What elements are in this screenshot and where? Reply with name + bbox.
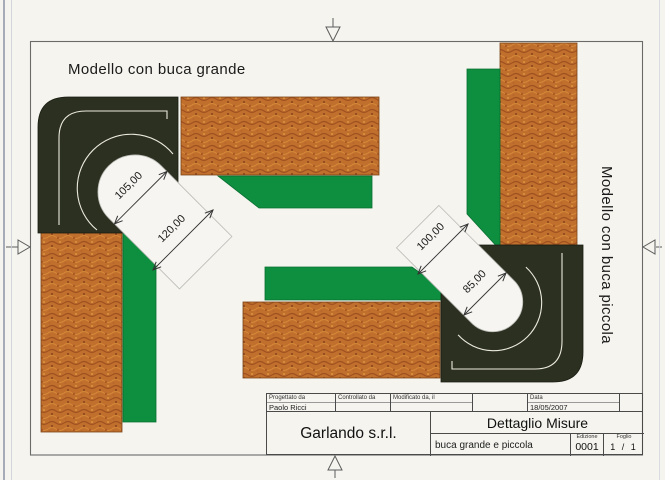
empty-label bbox=[473, 394, 527, 402]
scan-edge-line-left bbox=[3, 0, 5, 480]
empty-label bbox=[620, 394, 642, 402]
cell-sheet: Foglio 1 / 1 bbox=[604, 434, 644, 456]
center-mark-bottom bbox=[328, 456, 342, 478]
modified-by-label: Modificato da, il bbox=[391, 394, 472, 403]
scan-edge-line-left-2 bbox=[11, 0, 12, 480]
sheet-value: 1 / 1 bbox=[604, 441, 644, 454]
sheet-label: Foglio bbox=[604, 434, 644, 441]
cell-date: Data 18/05/2007 bbox=[528, 394, 620, 411]
model-large-assembly bbox=[38, 97, 379, 432]
company-name: Garlando s.r.l. bbox=[267, 412, 431, 456]
cell-empty-2 bbox=[620, 394, 642, 411]
wood-panel-right bbox=[500, 43, 577, 245]
checked-by-label: Controllato da bbox=[336, 394, 390, 403]
cell-designed-by: Progettato da Paolo Ricci bbox=[267, 394, 336, 411]
cell-empty-1 bbox=[473, 394, 528, 411]
cloth-strip-top bbox=[218, 176, 372, 208]
wood-panel-top bbox=[181, 97, 379, 175]
scan-edge-line-right bbox=[659, 0, 660, 480]
cell-modified-by: Modificato da, il bbox=[391, 394, 473, 411]
date-label: Data bbox=[528, 394, 619, 403]
edition-label: Edizione bbox=[571, 434, 603, 441]
scanned-technical-drawing: 105,00 120,00 100,00 85,00 Modello con b… bbox=[0, 0, 665, 480]
wood-panel-left bbox=[41, 233, 122, 432]
center-mark-left bbox=[6, 240, 30, 254]
cell-checked-by: Controllato da bbox=[336, 394, 391, 411]
designed-by-value: Paolo Ricci bbox=[267, 403, 335, 411]
cell-edition: Edizione 0001 bbox=[571, 434, 604, 456]
model-large-caption: Modello con buca grande bbox=[68, 61, 246, 78]
cloth-strip-right bbox=[467, 69, 500, 250]
document-title: Dettaglio Misure bbox=[431, 412, 644, 434]
document-subtitle: buca grande e piccola bbox=[431, 434, 571, 456]
title-block-header-row: Progettato da Paolo Ricci Controllato da… bbox=[267, 394, 642, 412]
date-value: 18/05/2007 bbox=[528, 403, 619, 411]
title-block: Progettato da Paolo Ricci Controllato da… bbox=[266, 393, 643, 455]
designed-by-label: Progettato da bbox=[267, 394, 335, 403]
model-small-caption: Modello con buca piccola bbox=[598, 166, 615, 348]
center-mark-top bbox=[326, 18, 340, 41]
wood-panel-bottom bbox=[243, 302, 440, 378]
model-small-assembly bbox=[243, 43, 583, 382]
edition-value: 0001 bbox=[571, 441, 603, 454]
